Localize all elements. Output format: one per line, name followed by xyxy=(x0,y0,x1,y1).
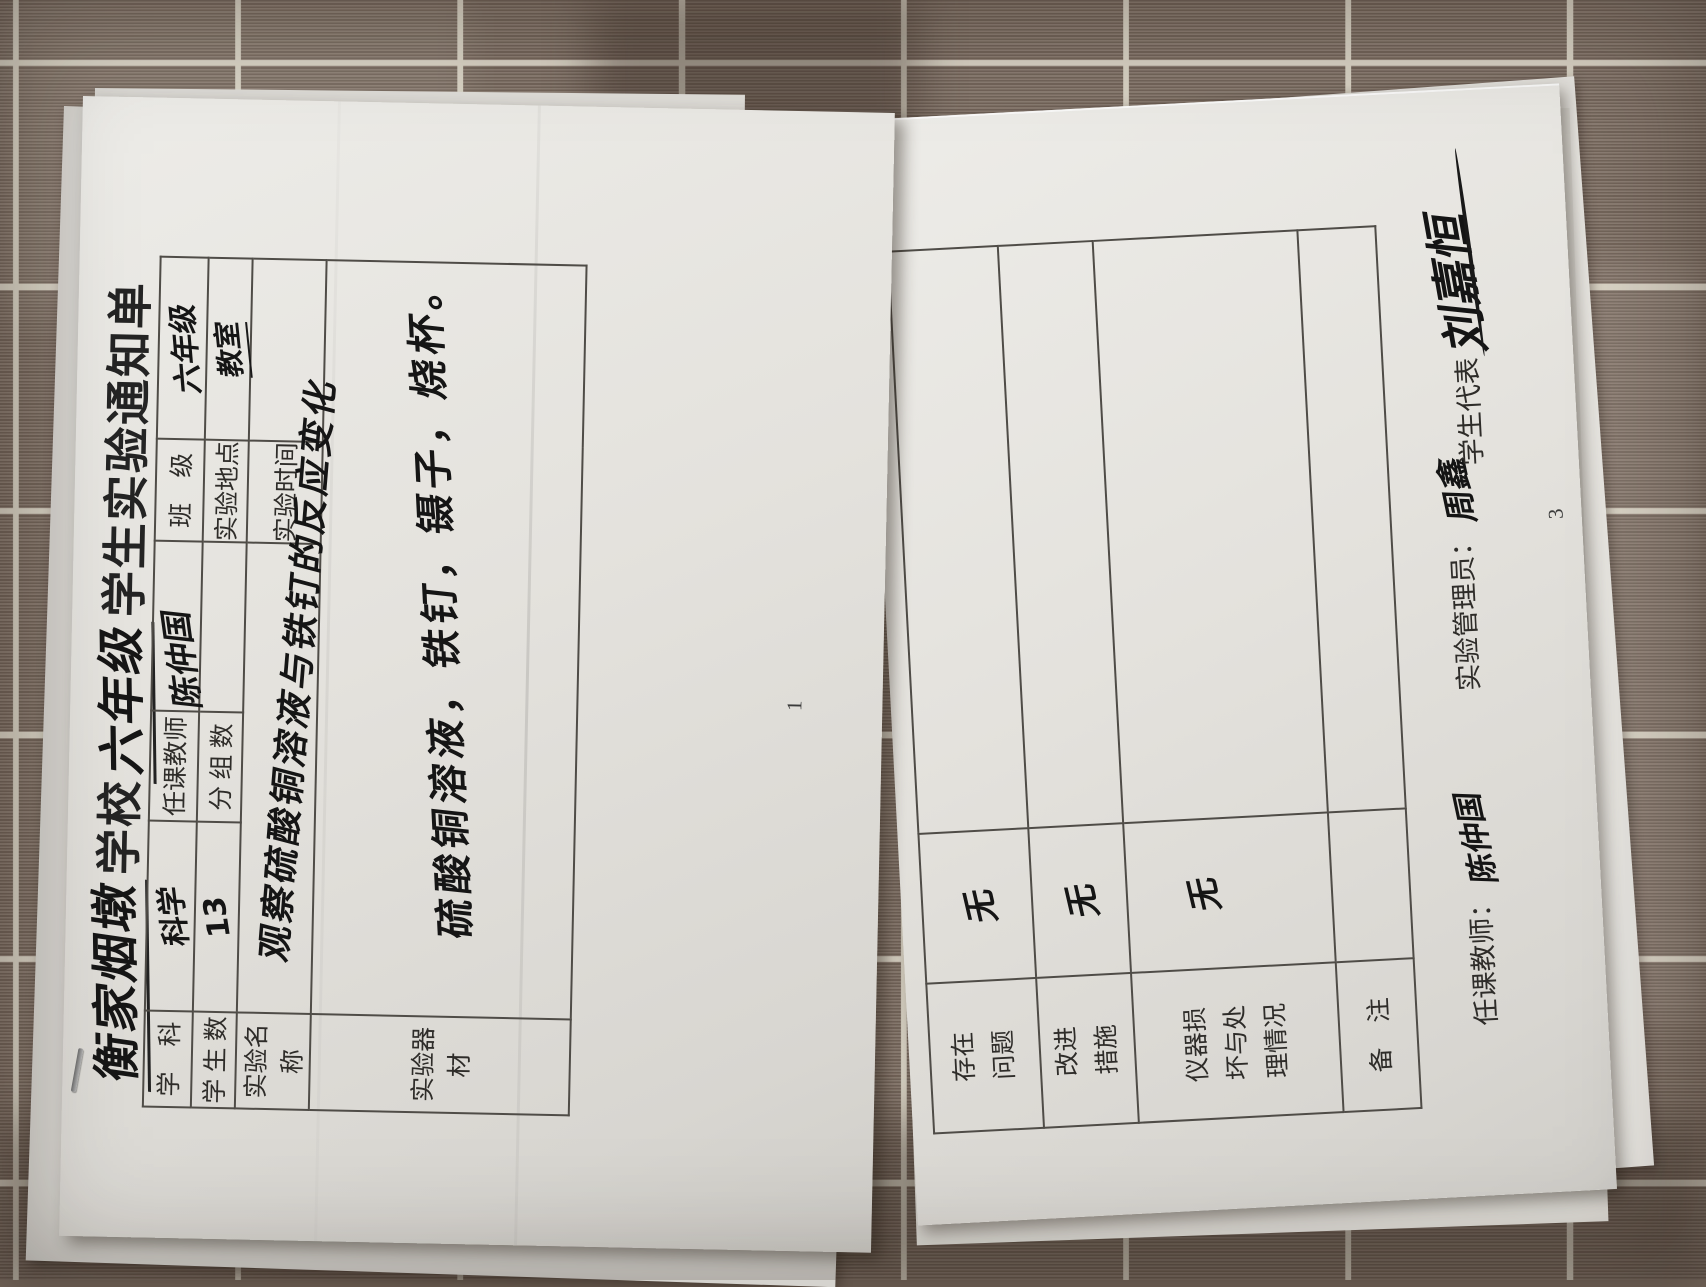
issues-value-cell: 无 xyxy=(918,828,1036,984)
student-signature-label: 学生代表 xyxy=(1452,357,1488,466)
issues-label-cell: 存在问题 xyxy=(926,978,1044,1134)
grade-handwritten: 六年级 xyxy=(81,612,156,785)
subject-label-cell: 学 科 xyxy=(143,1010,193,1107)
right-record-sheet: 存在问题 无 改进措施 无 仪器损坏与处理情况 无 xyxy=(860,83,1617,1225)
student-count-value-cell: 13 xyxy=(193,822,241,1013)
student-signature: 刘嘉恒 xyxy=(1404,208,1500,354)
teacher-signature-label: 任课教师： xyxy=(1465,890,1502,1026)
teacher-signature: 陈仲国 xyxy=(1440,791,1506,884)
manager-signature-label: 实验管理员： xyxy=(1446,528,1484,691)
subject-value-cell: 科学 xyxy=(145,821,197,1012)
teacher-signature-cell: 陈仲国 xyxy=(151,541,203,712)
issues-label: 存在问题 xyxy=(944,1025,1027,1087)
right-sheet-content: 存在问题 无 改进措施 无 仪器损坏与处理情况 无 xyxy=(860,85,1617,1225)
teacher-signature-group: 任课教师： 陈仲国 xyxy=(1448,790,1505,1027)
class-value: 六年级 xyxy=(157,301,209,395)
group-count-value-cell xyxy=(199,542,247,713)
location-label: 实验地点 xyxy=(214,441,243,542)
page-number: 1 xyxy=(782,700,807,711)
class-value-cell: 六年级 xyxy=(157,257,209,440)
equipment-label: 实验器材 xyxy=(410,1027,474,1103)
subject-label: 学 科 xyxy=(156,1021,185,1097)
remarks-value-cell xyxy=(1328,808,1414,962)
class-label: 班 级 xyxy=(168,452,197,528)
improvements-label: 改进措施 xyxy=(1046,1019,1129,1081)
experiment-name-label: 实验名称 xyxy=(243,1023,307,1099)
school-name-handwritten: 衡家烟墩 xyxy=(75,870,151,1093)
record-table: 存在问题 无 改进措施 无 仪器损坏与处理情况 无 xyxy=(887,223,1423,1134)
issues-value: 无 xyxy=(949,888,1006,924)
student-count-value: 13 xyxy=(196,895,238,938)
improvements-label-cell: 改进措施 xyxy=(1036,973,1139,1128)
equipment-label-cell: 实验器材 xyxy=(309,1014,571,1115)
manager-signature-group: 实验管理员： 周鑫 xyxy=(1428,455,1488,692)
teacher-label-cell: 任课教师 xyxy=(149,711,199,822)
class-label-cell: 班 级 xyxy=(155,439,205,542)
damage-value-cell: 无 xyxy=(1123,812,1336,973)
signature-line: 任课教师： 陈仲国 实验管理员： 周鑫 学生代表 刘嘉恒 xyxy=(1399,90,1537,1198)
title-text: 学生实验通知单 xyxy=(99,280,157,617)
group-count-label: 分 组 数 xyxy=(208,723,237,811)
location-value-cell: 教室 xyxy=(205,258,253,441)
improvements-value-cell: 无 xyxy=(1028,823,1131,978)
location-label-cell: 实验地点 xyxy=(203,440,249,543)
school-suffix: 学校 xyxy=(94,778,147,875)
student-signature-group: 学生代表 刘嘉恒 xyxy=(1414,209,1496,468)
improvements-value: 无 xyxy=(1051,883,1108,919)
remarks-label: 备 注 xyxy=(1366,997,1397,1073)
remarks-label-cell: 备 注 xyxy=(1336,958,1422,1112)
subject-value: 科学 xyxy=(145,886,197,947)
student-count-label-cell: 学 生 数 xyxy=(191,1012,237,1109)
left-notice-sheet: 衡家烟墩学校六年级学生实验通知单 学 科 科学 任课教师 陈仲国 xyxy=(59,96,895,1253)
location-value: 教室 xyxy=(205,320,253,377)
teacher-label: 任课教师 xyxy=(162,716,191,817)
damage-value: 无 xyxy=(1173,876,1230,912)
empty-cell xyxy=(1093,230,1328,823)
student-count-label: 学 生 数 xyxy=(202,1016,231,1104)
damage-label-cell: 仪器损坏与处理情况 xyxy=(1131,962,1344,1123)
left-sheet-content: 衡家烟墩学校六年级学生实验通知单 学 科 科学 任课教师 陈仲国 xyxy=(59,96,895,1253)
experiment-name-label-cell: 实验名称 xyxy=(235,1012,311,1110)
damage-label: 仪器损坏与处理情况 xyxy=(1175,997,1299,1087)
notice-table: 学 科 科学 任课教师 陈仲国 班 级 六年级 学 生 数 xyxy=(142,254,588,1117)
page-number: 3 xyxy=(1543,508,1569,520)
group-count-label-cell: 分 组 数 xyxy=(197,712,243,823)
